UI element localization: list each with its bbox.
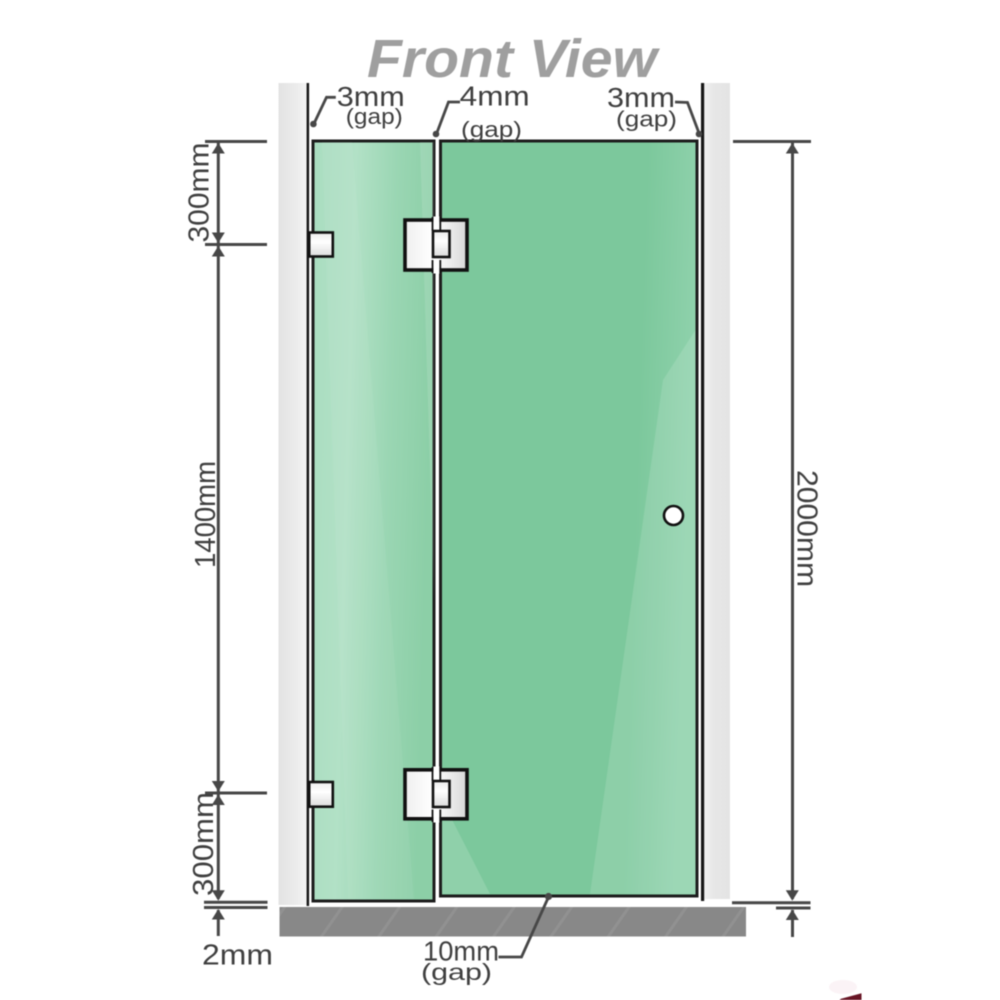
svg-text:2000mm: 2000mm — [791, 470, 823, 587]
svg-text:(gap): (gap) — [421, 959, 492, 985]
svg-text:(gap): (gap) — [346, 104, 403, 129]
svg-text:4mm: 4mm — [460, 81, 530, 112]
svg-text:2mm: 2mm — [202, 940, 273, 972]
svg-text:(gap): (gap) — [461, 117, 522, 142]
svg-text:300mm: 300mm — [188, 792, 220, 896]
svg-text:1400mm: 1400mm — [190, 461, 222, 568]
svg-text:(gap): (gap) — [616, 107, 677, 132]
svg-text:300mm: 300mm — [184, 143, 216, 243]
